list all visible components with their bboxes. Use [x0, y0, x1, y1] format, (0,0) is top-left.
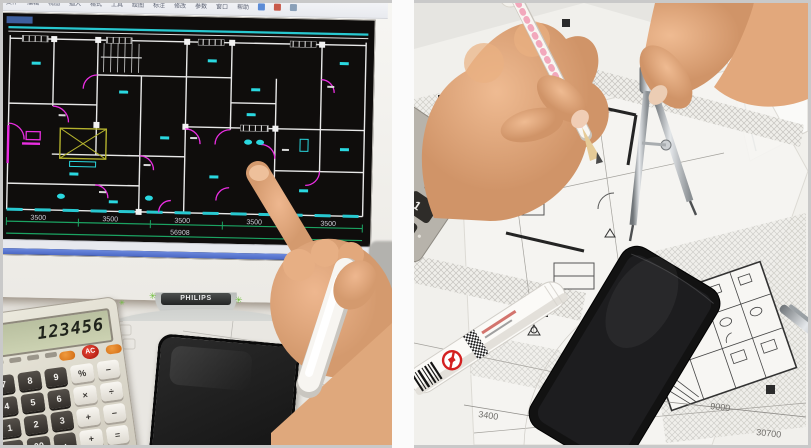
photo-collage: 文件 编辑 视图 插入 格式 工具 绘图 标注 修改 参数 窗口 帮助 [0, 0, 811, 448]
right-photo-blueprint-scene: 3400 9000 30700 0 0 1 4 [414, 3, 808, 445]
blueprint-drawing: 3400 9000 30700 0 0 1 4 [414, 3, 808, 445]
fingertip [249, 165, 269, 181]
pointing-hand-overlay [3, 3, 392, 445]
pointing-hand [249, 165, 392, 445]
left-photo-cad-monitor-scene: 文件 编辑 视图 插入 格式 工具 绘图 标注 修改 参数 窗口 帮助 [3, 3, 392, 445]
dimension-label: 9000 [710, 401, 731, 413]
photo-divider [392, 0, 414, 448]
